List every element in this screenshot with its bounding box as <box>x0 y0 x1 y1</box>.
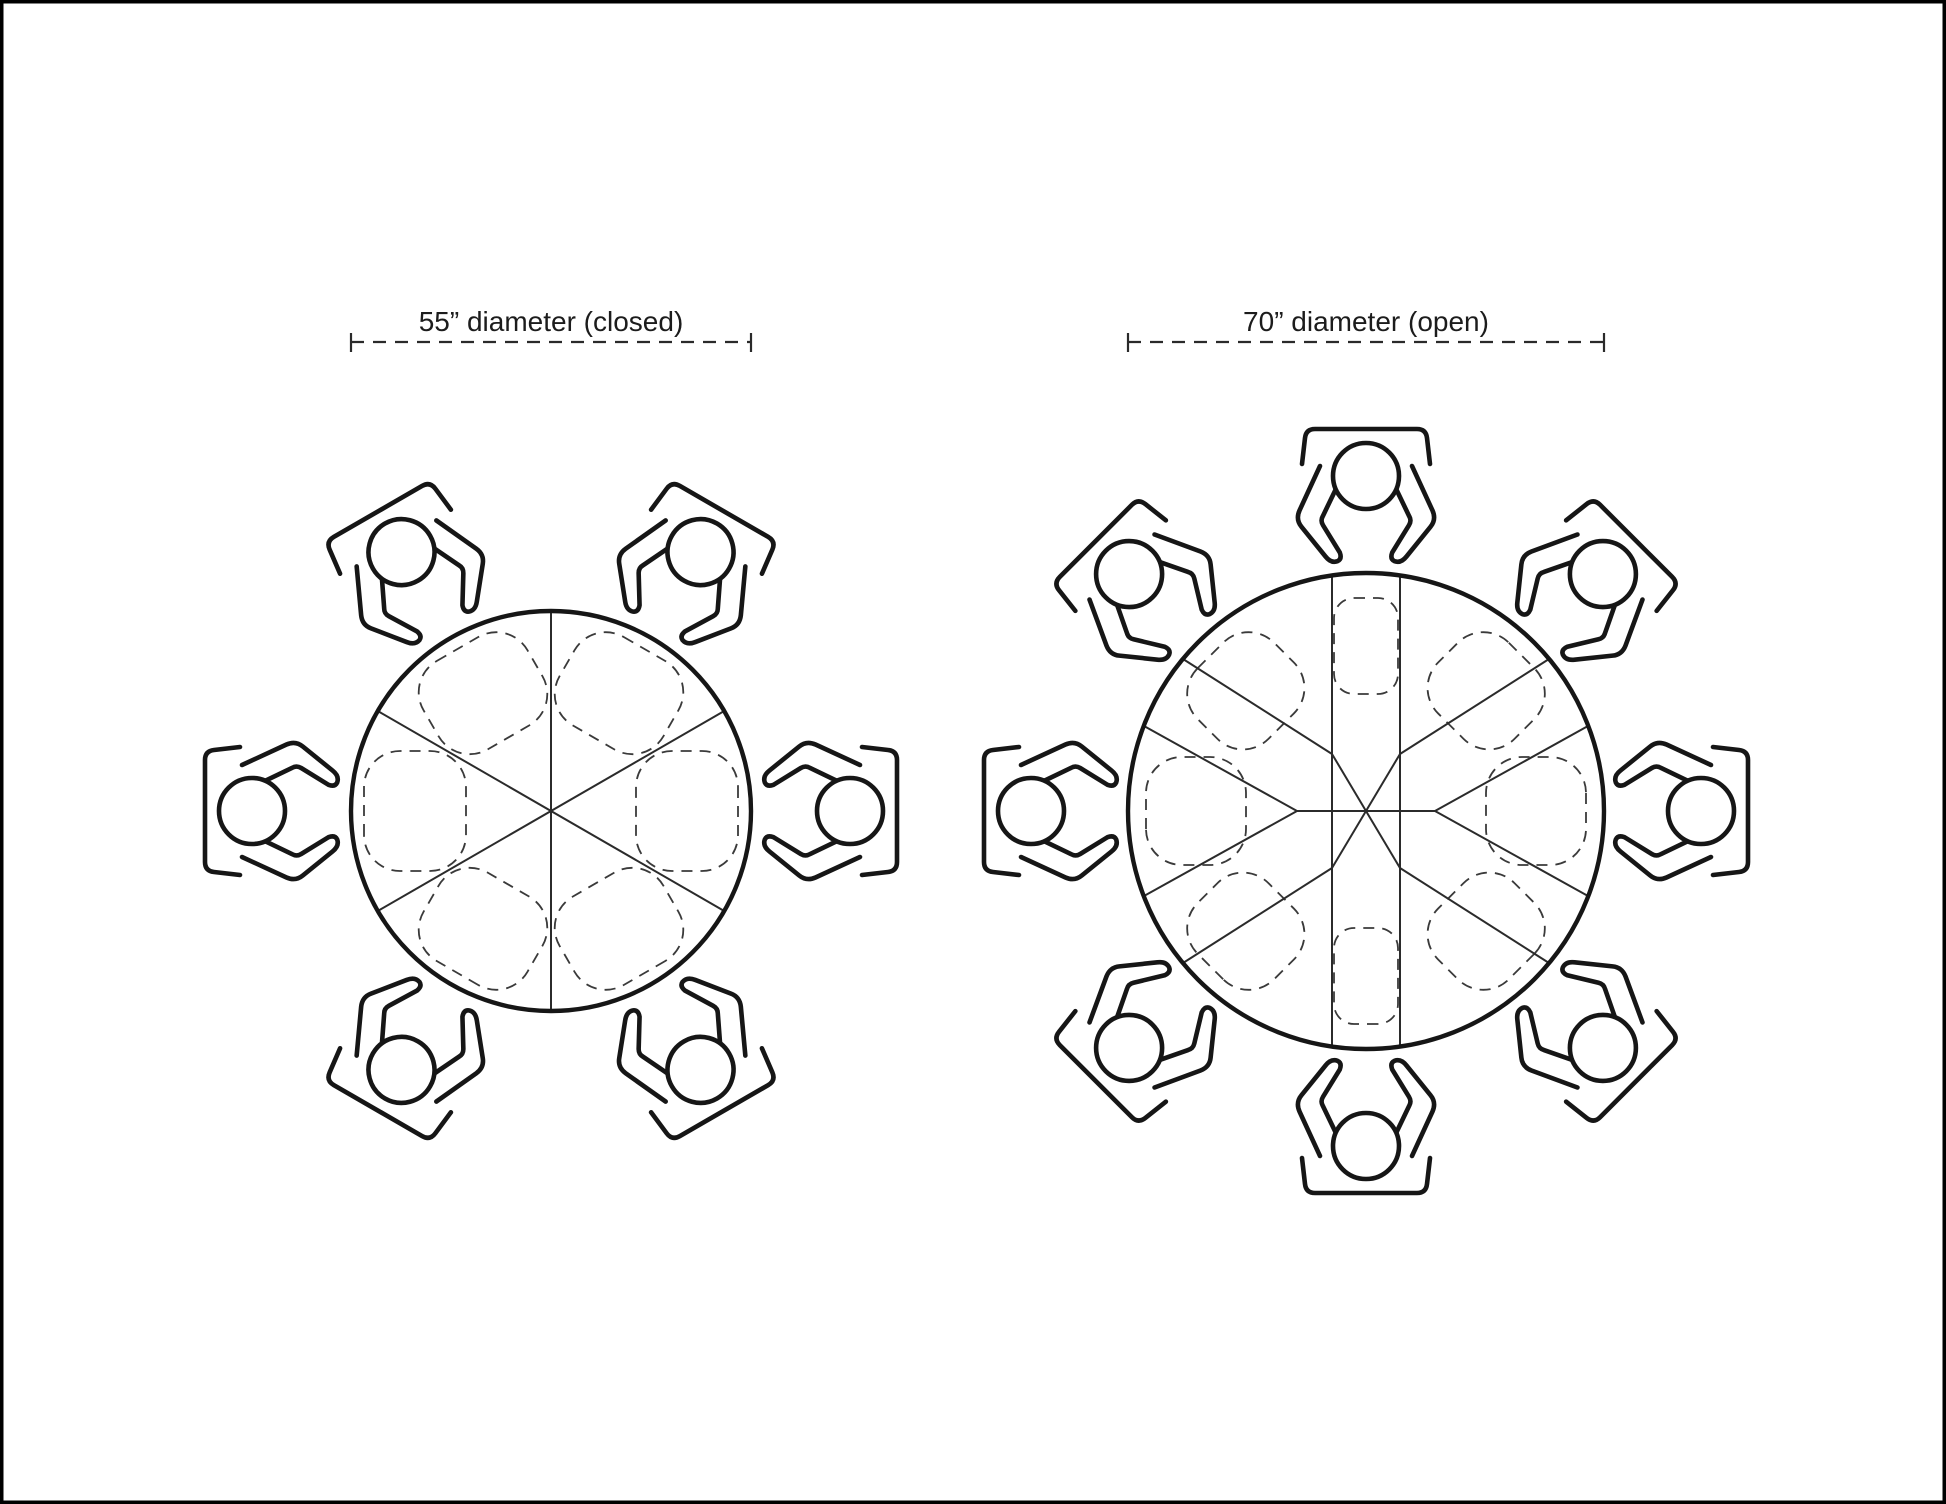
table-capacity-diagram: 55” diameter (closed) <box>0 0 1946 1504</box>
page-border-frame <box>2 2 1945 1503</box>
open-diameter-label: 70” diameter (open) <box>1243 306 1489 337</box>
floorplan-page: 55” diameter (closed) <box>0 0 1946 1504</box>
closed-diameter-label: 55” diameter (closed) <box>419 306 684 337</box>
